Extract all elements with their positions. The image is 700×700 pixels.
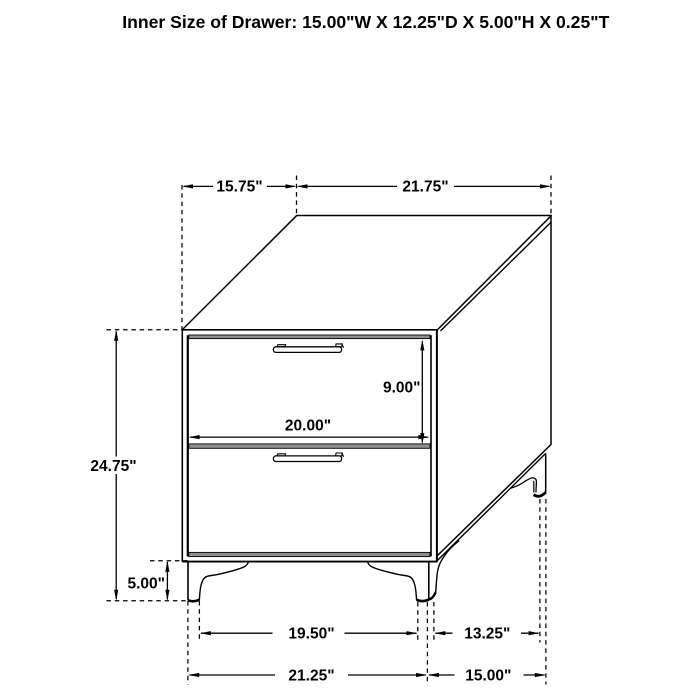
svg-text:5.00": 5.00" [127,575,165,592]
svg-text:9.00": 9.00" [383,379,421,396]
svg-text:21.25": 21.25" [288,667,334,684]
svg-text:20.00": 20.00" [285,418,331,435]
svg-text:15.00": 15.00" [465,667,511,684]
svg-text:13.25": 13.25" [464,626,510,643]
svg-text:21.75": 21.75" [402,179,448,196]
svg-text:Inner Size of Drawer: 15.00"W: Inner Size of Drawer: 15.00"W X 12.25"D … [122,12,609,32]
svg-text:15.75": 15.75" [216,179,262,196]
svg-text:19.50": 19.50" [288,626,334,643]
svg-text:24.75": 24.75" [90,458,136,475]
